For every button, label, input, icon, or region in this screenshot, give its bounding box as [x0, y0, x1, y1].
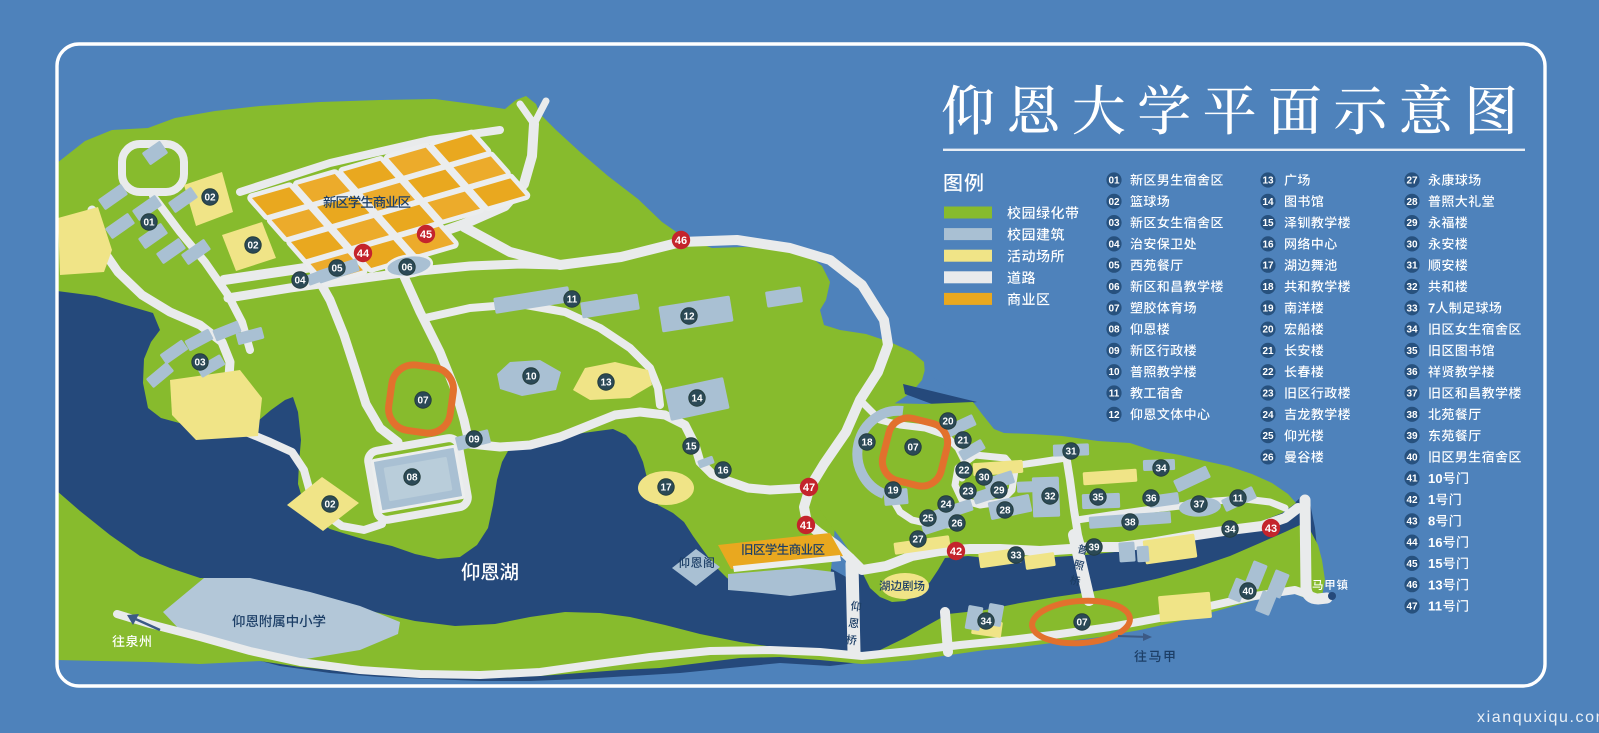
- svg-text:03: 03: [194, 358, 206, 369]
- svg-text:28: 28: [1406, 197, 1418, 208]
- svg-text:22: 22: [1262, 367, 1274, 378]
- svg-text:26: 26: [1262, 452, 1274, 463]
- svg-text:23: 23: [1262, 389, 1274, 400]
- svg-text:12: 12: [1108, 410, 1120, 421]
- svg-text:39: 39: [1406, 431, 1418, 442]
- svg-text:xianquxiqu.com: xianquxiqu.com: [1477, 709, 1599, 726]
- svg-text:32: 32: [1044, 492, 1056, 503]
- svg-text:40: 40: [1242, 587, 1254, 598]
- svg-text:7: 7: [1428, 301, 1435, 316]
- svg-text:07: 07: [907, 443, 919, 454]
- svg-text:29: 29: [993, 486, 1005, 497]
- svg-text:8: 8: [1428, 514, 1435, 529]
- svg-text:28: 28: [999, 506, 1011, 517]
- svg-text:17: 17: [1262, 261, 1274, 272]
- svg-text:27: 27: [912, 535, 924, 546]
- svg-text:10: 10: [525, 372, 537, 383]
- svg-text:35: 35: [1092, 493, 1104, 504]
- svg-text:10: 10: [1428, 471, 1443, 486]
- svg-text:17: 17: [660, 483, 672, 494]
- svg-text:34: 34: [980, 617, 992, 628]
- svg-text:05: 05: [1108, 261, 1120, 272]
- svg-text:18: 18: [861, 438, 873, 449]
- svg-text:41: 41: [800, 520, 812, 532]
- svg-text:08: 08: [1108, 325, 1120, 336]
- svg-text:14: 14: [691, 394, 703, 405]
- svg-text:34: 34: [1406, 325, 1418, 336]
- svg-text:06: 06: [401, 263, 413, 274]
- svg-text:19: 19: [887, 486, 899, 497]
- svg-text:01: 01: [143, 218, 155, 229]
- svg-text:02: 02: [1108, 197, 1120, 208]
- svg-text:36: 36: [1145, 494, 1157, 505]
- svg-text:15: 15: [1428, 556, 1443, 571]
- svg-text:42: 42: [950, 546, 962, 558]
- svg-text:34: 34: [1155, 464, 1167, 475]
- svg-text:21: 21: [1262, 346, 1274, 357]
- svg-text:20: 20: [1262, 325, 1274, 336]
- svg-text:38: 38: [1124, 518, 1136, 529]
- svg-text:41: 41: [1406, 474, 1418, 485]
- svg-text:19: 19: [1262, 303, 1274, 314]
- svg-text:46: 46: [1406, 580, 1418, 591]
- svg-text:45: 45: [420, 229, 432, 241]
- svg-text:46: 46: [675, 235, 687, 247]
- svg-text:14: 14: [1262, 197, 1274, 208]
- svg-text:33: 33: [1406, 303, 1418, 314]
- svg-text:44: 44: [1406, 538, 1418, 549]
- svg-text:27: 27: [1406, 176, 1418, 187]
- svg-text:11: 11: [567, 295, 578, 306]
- svg-text:47: 47: [803, 482, 815, 494]
- svg-text:32: 32: [1406, 282, 1418, 293]
- svg-text:02: 02: [204, 193, 216, 204]
- svg-text:38: 38: [1406, 410, 1418, 421]
- svg-text:43: 43: [1265, 523, 1277, 535]
- svg-text:09: 09: [1108, 346, 1120, 357]
- svg-text:31: 31: [1406, 261, 1418, 272]
- svg-text:43: 43: [1406, 516, 1418, 527]
- svg-text:07: 07: [1076, 618, 1088, 629]
- svg-text:20: 20: [942, 417, 954, 428]
- svg-text:04: 04: [1108, 239, 1120, 250]
- svg-text:13: 13: [1262, 176, 1274, 187]
- svg-text:42: 42: [1406, 495, 1418, 506]
- svg-text:11: 11: [1428, 599, 1442, 614]
- svg-text:01: 01: [1108, 176, 1120, 187]
- svg-text:22: 22: [958, 466, 970, 477]
- svg-text:05: 05: [331, 264, 343, 275]
- svg-text:06: 06: [1108, 282, 1120, 293]
- svg-text:37: 37: [1406, 389, 1418, 400]
- svg-text:44: 44: [357, 248, 370, 260]
- svg-text:13: 13: [1428, 577, 1443, 592]
- svg-text:30: 30: [978, 473, 990, 484]
- svg-text:31: 31: [1065, 447, 1077, 458]
- svg-text:24: 24: [940, 500, 952, 511]
- svg-text:40: 40: [1406, 452, 1418, 463]
- svg-text:15: 15: [1262, 218, 1274, 229]
- svg-text:02: 02: [247, 241, 259, 252]
- svg-text:29: 29: [1406, 218, 1418, 229]
- svg-text:16: 16: [717, 466, 729, 477]
- svg-text:08: 08: [406, 473, 418, 484]
- svg-text:15: 15: [685, 442, 697, 453]
- svg-text:16: 16: [1262, 239, 1274, 250]
- svg-text:25: 25: [922, 514, 934, 525]
- svg-text:47: 47: [1406, 602, 1418, 613]
- svg-text:12: 12: [683, 312, 695, 323]
- svg-text:39: 39: [1088, 543, 1100, 554]
- svg-text:11: 11: [1109, 389, 1120, 400]
- svg-text:45: 45: [1406, 559, 1418, 570]
- svg-text:04: 04: [294, 276, 306, 287]
- svg-text:1: 1: [1428, 492, 1435, 507]
- svg-text:36: 36: [1406, 367, 1418, 378]
- svg-text:03: 03: [1108, 218, 1120, 229]
- svg-text:25: 25: [1262, 431, 1274, 442]
- svg-text:07: 07: [1108, 303, 1120, 314]
- svg-text:26: 26: [951, 519, 963, 530]
- svg-text:30: 30: [1406, 239, 1418, 250]
- svg-text:23: 23: [962, 487, 974, 498]
- svg-text:10: 10: [1108, 367, 1120, 378]
- svg-text:18: 18: [1262, 282, 1274, 293]
- svg-text:07: 07: [417, 396, 429, 407]
- svg-text:33: 33: [1010, 551, 1022, 562]
- svg-text:09: 09: [468, 435, 480, 446]
- svg-text:35: 35: [1406, 346, 1418, 357]
- svg-text:24: 24: [1262, 410, 1274, 421]
- svg-text:16: 16: [1428, 535, 1443, 550]
- svg-text:11: 11: [1233, 494, 1244, 505]
- svg-text:13: 13: [600, 378, 612, 389]
- svg-text:02: 02: [324, 500, 336, 511]
- svg-text:34: 34: [1224, 525, 1236, 536]
- svg-text:21: 21: [957, 436, 969, 447]
- svg-text:37: 37: [1193, 500, 1205, 511]
